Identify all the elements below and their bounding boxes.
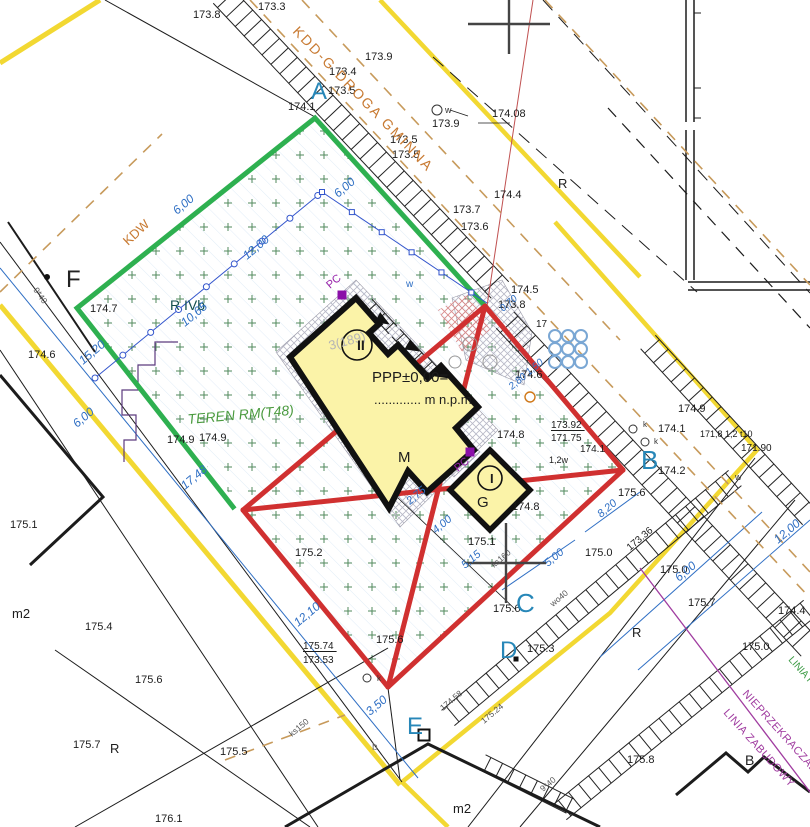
- line: [566, 606, 579, 621]
- line: [568, 792, 581, 807]
- line: [422, 209, 439, 225]
- road-edge-yellow: [0, 0, 100, 63]
- line: [606, 573, 619, 588]
- line: [740, 653, 753, 668]
- road-label-kdw: KDW: [120, 216, 153, 248]
- line: [360, 143, 377, 159]
- map-label: 174.2: [658, 465, 686, 477]
- line: [660, 488, 678, 504]
- map-label: 17: [536, 319, 548, 330]
- map-label: 175.6: [135, 674, 163, 686]
- line: [646, 540, 659, 555]
- line: [226, 1, 243, 17]
- line: [668, 497, 686, 513]
- line: [580, 402, 598, 418]
- line: [378, 161, 395, 177]
- map-label: 17,48: [178, 462, 210, 492]
- map-label: 175.1: [10, 519, 38, 531]
- line: [666, 523, 679, 538]
- map-label: 174.08: [492, 108, 526, 120]
- line: [262, 38, 279, 54]
- line: [689, 387, 704, 401]
- line: [639, 735, 652, 750]
- map-label: 174.4: [778, 605, 806, 617]
- map-label: 175.1: [468, 536, 496, 548]
- map-label: 8,20: [595, 497, 620, 521]
- line: [713, 545, 731, 561]
- map-label: R: [632, 625, 641, 640]
- corner-letter-e: E: [407, 713, 423, 740]
- map-label: 175.2: [295, 547, 323, 559]
- line: [546, 623, 559, 638]
- map-label: 173.92: [551, 420, 582, 431]
- map-label: 174.58: [438, 688, 465, 713]
- garage-storeys-numeral: I: [490, 471, 494, 486]
- corner-letter-d: D: [500, 637, 517, 664]
- map-line: [640, 568, 810, 792]
- line: [396, 180, 413, 196]
- line: [659, 718, 672, 733]
- map-label: 175.5: [220, 746, 248, 758]
- line: [484, 758, 491, 772]
- line: [467, 256, 484, 272]
- map-label: w: [444, 105, 452, 115]
- line: [571, 392, 589, 408]
- map-label: R: [110, 741, 119, 756]
- site-plan-canvas: 173.8173.3173.9173.4173.5174.1173.5173.5…: [0, 0, 810, 827]
- map-label: 171,8 1,2 t10: [700, 429, 753, 439]
- fence-post-marker: [349, 210, 354, 215]
- line: [730, 661, 743, 676]
- map-label: 173.8: [193, 9, 221, 21]
- map-label: 173.3: [258, 1, 286, 13]
- fence-post-marker: [231, 261, 237, 267]
- map-line: [75, 648, 388, 827]
- line: [636, 548, 649, 563]
- map-label: 9*40: [538, 774, 558, 793]
- map-label: 1,2w: [549, 455, 569, 465]
- garage-label: G: [477, 494, 489, 511]
- line: [271, 48, 288, 64]
- map-label: 174.8: [497, 429, 525, 441]
- line: [217, 0, 234, 8]
- map-label: 171.90: [741, 443, 772, 454]
- map-label: 9*40: [31, 285, 49, 305]
- map-label: 174.6: [28, 349, 56, 361]
- boundary-line-label: LINIA R.: [786, 655, 810, 690]
- site-plan-page: 173.8173.3173.9173.4173.5174.1173.5173.5…: [0, 0, 810, 827]
- line: [770, 628, 783, 643]
- map-label: 176.1: [155, 813, 183, 825]
- point-symbol-square: [466, 448, 475, 457]
- map-line: [433, 57, 697, 292]
- map-label: m2: [12, 606, 30, 621]
- line: [253, 29, 270, 45]
- map-line: [0, 375, 103, 565]
- map-label: 173.9: [432, 118, 460, 130]
- map-label: 3,50: [363, 692, 390, 718]
- line: [369, 152, 386, 168]
- road-hatch-band: [478, 755, 573, 813]
- line: [589, 411, 607, 427]
- line: [616, 565, 629, 580]
- line: [768, 474, 783, 488]
- corner-letter-c: C: [516, 588, 535, 618]
- line: [656, 531, 669, 546]
- line: [671, 368, 686, 382]
- line: [759, 464, 774, 478]
- map-label: R: [558, 176, 567, 191]
- line: [662, 359, 677, 373]
- line: [748, 583, 766, 599]
- line: [324, 105, 341, 121]
- map-label: 175.7: [73, 739, 101, 751]
- fence-post-marker: [92, 375, 98, 381]
- line: [654, 349, 669, 363]
- map-label: 6,00: [672, 558, 699, 584]
- line: [757, 592, 775, 608]
- map-label: 175.7: [688, 597, 716, 609]
- fence-post-marker: [203, 284, 209, 290]
- map-label: 174.5: [511, 284, 539, 296]
- infiltration-grid-circle: [549, 356, 561, 368]
- line: [680, 378, 695, 392]
- road-hatch-band: [554, 600, 810, 819]
- map-label: 175.4: [85, 621, 113, 633]
- fence-post-marker: [439, 270, 444, 275]
- map-label: 175.24: [479, 701, 506, 726]
- map-label: 174.9: [167, 434, 195, 446]
- line: [689, 694, 702, 709]
- line: [669, 710, 682, 725]
- line: [414, 199, 431, 215]
- line: [431, 218, 448, 234]
- line: [333, 114, 350, 130]
- map-label: 175.0: [585, 547, 613, 559]
- infiltration-grid-circle: [575, 356, 587, 368]
- line: [649, 726, 662, 741]
- map-label: 173.9: [365, 51, 393, 63]
- line: [695, 526, 713, 542]
- line: [615, 440, 633, 456]
- line: [342, 124, 359, 140]
- map-label: ks150: [287, 716, 311, 738]
- map-label: 175.6: [376, 634, 404, 646]
- line: [449, 237, 466, 253]
- line: [578, 784, 591, 799]
- line: [244, 20, 261, 36]
- map-label: 174.7: [90, 303, 118, 315]
- line: [476, 681, 489, 696]
- map-label: w: [405, 279, 414, 290]
- map-label: 174.1: [658, 423, 686, 435]
- line: [589, 776, 602, 791]
- map-label: B: [745, 752, 754, 768]
- line: [739, 573, 757, 589]
- map-label: 175.0: [742, 641, 770, 653]
- point-symbol-circle: [363, 674, 371, 682]
- line: [596, 581, 609, 596]
- map-label: 171.75: [551, 433, 582, 444]
- infiltration-grid-circle: [562, 356, 574, 368]
- line: [351, 133, 368, 149]
- line: [780, 620, 793, 635]
- road-median-dash: [545, 0, 810, 285]
- fence-post-marker: [469, 290, 474, 295]
- map-label: 175.8: [627, 754, 655, 766]
- line: [599, 768, 612, 783]
- map-label: 174.8: [512, 501, 540, 513]
- map-label: m2: [453, 801, 471, 816]
- survey-dot: [44, 274, 50, 280]
- map-label: 173.36: [625, 525, 656, 553]
- line: [562, 383, 580, 399]
- map-label: 174.1: [580, 444, 605, 455]
- infiltration-grid-circle: [575, 330, 587, 342]
- line: [405, 190, 422, 206]
- storeys-numeral: II: [357, 337, 365, 353]
- building-material-label: M: [398, 449, 411, 466]
- line: [586, 590, 599, 605]
- line: [576, 598, 589, 613]
- map-label: 175.6: [618, 487, 646, 499]
- infiltration-grid-circle: [549, 343, 561, 355]
- line: [387, 171, 404, 187]
- line: [607, 430, 625, 446]
- line: [458, 247, 475, 263]
- fence-post-marker: [287, 215, 293, 221]
- line: [556, 615, 569, 630]
- point-symbol-circle: [432, 105, 442, 115]
- fence-post-marker: [120, 352, 126, 358]
- line: [706, 407, 721, 421]
- line: [715, 416, 730, 430]
- line: [777, 483, 792, 497]
- line: [235, 10, 252, 26]
- line: [496, 665, 509, 680]
- map-label: 175.3: [527, 643, 555, 655]
- line: [598, 421, 616, 437]
- corner-letter-f: F: [66, 266, 81, 293]
- point-symbol-square: [338, 291, 347, 300]
- map-line: [543, 0, 810, 293]
- fence-post-marker: [409, 250, 414, 255]
- setback-line-label: LINIA ZABUDOWY: [721, 707, 797, 790]
- map-label: 174.9: [678, 403, 706, 415]
- map-line: [450, 110, 468, 116]
- map-label: 5,00: [542, 546, 567, 570]
- corner-letter-b: B: [641, 445, 658, 475]
- line: [704, 535, 722, 551]
- line: [609, 759, 622, 774]
- infiltration-grid-circle: [562, 343, 574, 355]
- map-label: 175.74: [303, 641, 334, 652]
- line: [440, 228, 457, 244]
- line: [794, 502, 809, 516]
- line: [651, 478, 669, 494]
- map-label: 174.9: [199, 432, 227, 444]
- map-label: 173.7: [453, 204, 481, 216]
- fence-post-marker: [320, 190, 325, 195]
- point-symbol-circle: [629, 425, 637, 433]
- line: [786, 493, 801, 507]
- line: [722, 554, 740, 570]
- map-label: 174.4: [494, 189, 522, 201]
- building-level-units: ............. m n.p.m: [374, 392, 472, 407]
- line: [709, 677, 722, 692]
- line: [466, 690, 479, 705]
- corner-letter-a: A: [311, 78, 327, 105]
- line: [280, 57, 297, 73]
- line: [486, 673, 499, 688]
- line: [626, 556, 639, 571]
- infiltration-grid-circle: [549, 330, 561, 342]
- line: [289, 67, 306, 83]
- map-label: 173.6: [461, 221, 489, 233]
- line: [624, 450, 642, 466]
- map-label: 173.53: [303, 655, 334, 666]
- map-label: 6,00: [70, 404, 97, 430]
- line: [679, 702, 692, 717]
- line: [645, 340, 660, 354]
- map-label: b: [372, 742, 378, 753]
- fence-post-marker: [148, 329, 154, 335]
- building-level-label: PPP±0,00=: [372, 369, 448, 386]
- map-label: w: [734, 472, 742, 482]
- line: [699, 685, 712, 700]
- fence-post-marker: [379, 230, 384, 235]
- survey-crosshair: [468, 0, 550, 54]
- map-line: [608, 108, 810, 328]
